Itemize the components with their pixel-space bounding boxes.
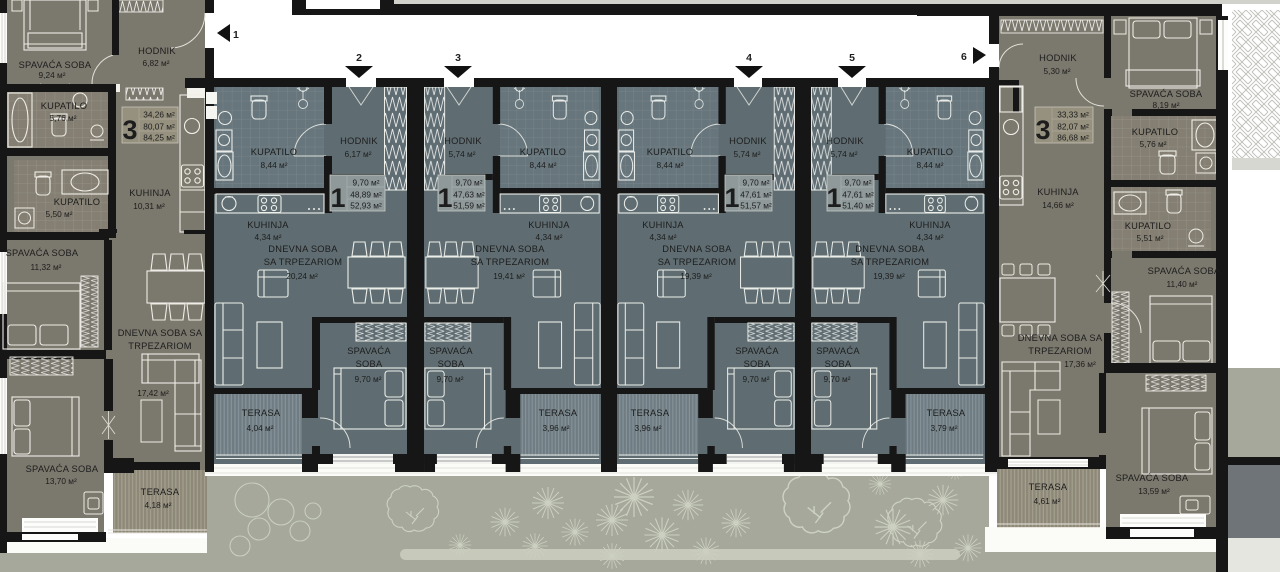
svg-text:3,79 м²: 3,79 м²: [931, 423, 958, 433]
svg-text:1: 1: [233, 29, 239, 41]
svg-text:TERASA: TERASA: [1029, 482, 1068, 492]
svg-text:84,25 м²: 84,25 м²: [143, 133, 175, 143]
svg-text:HODNIK: HODNIK: [729, 136, 767, 146]
svg-text:KUPATILO: KUPATILO: [251, 147, 298, 157]
svg-text:SPAVAĆA SOBA: SPAVAĆA SOBA: [1130, 89, 1203, 99]
svg-text:1: 1: [437, 183, 452, 213]
svg-text:33,33 м²: 33,33 м²: [1057, 110, 1089, 120]
svg-text:8,44 м²: 8,44 м²: [530, 160, 557, 170]
svg-text:3: 3: [455, 52, 461, 64]
svg-text:6,17 м²: 6,17 м²: [345, 149, 372, 159]
svg-text:DNEVNA SOBA: DNEVNA SOBA: [475, 244, 545, 254]
svg-text:34,26 м²: 34,26 м²: [143, 110, 175, 120]
svg-text:KUHINJA: KUHINJA: [642, 220, 684, 230]
svg-text:17,42 м²: 17,42 м²: [137, 388, 169, 398]
svg-text:TERASA: TERASA: [141, 487, 180, 497]
svg-text:TERASA: TERASA: [927, 408, 966, 418]
svg-text:9,70 м²: 9,70 м²: [355, 374, 382, 384]
svg-text:9,70 м²: 9,70 м²: [824, 374, 851, 384]
svg-text:5,76 м²: 5,76 м²: [50, 113, 77, 123]
svg-text:5,74 м²: 5,74 м²: [734, 149, 761, 159]
svg-text:1: 1: [724, 183, 739, 213]
svg-text:SPAVAĆA: SPAVAĆA: [816, 346, 860, 356]
svg-text:3,96 м²: 3,96 м²: [635, 423, 662, 433]
svg-text:TERASA: TERASA: [242, 408, 281, 418]
svg-text:48,89 м²: 48,89 м²: [350, 190, 382, 200]
svg-text:5,74 м²: 5,74 м²: [449, 149, 476, 159]
svg-text:KUPATILO: KUPATILO: [1125, 221, 1172, 231]
svg-text:5,74 м²: 5,74 м²: [831, 149, 858, 159]
svg-text:SA TRPEZARIOM: SA TRPEZARIOM: [471, 257, 550, 267]
svg-text:47,61 м²: 47,61 м²: [740, 190, 772, 200]
svg-text:HODNIK: HODNIK: [340, 136, 378, 146]
svg-text:10,31 м²: 10,31 м²: [133, 201, 165, 211]
svg-text:9,70 м²: 9,70 м²: [353, 178, 380, 188]
svg-text:4,61 м²: 4,61 м²: [1034, 496, 1061, 506]
svg-text:14,66 м²: 14,66 м²: [1042, 200, 1074, 210]
svg-text:13,70 м²: 13,70 м²: [45, 476, 77, 486]
svg-text:3,96 м²: 3,96 м²: [543, 423, 570, 433]
svg-text:SA TRPEZARIOM: SA TRPEZARIOM: [658, 257, 737, 267]
svg-text:KUHINJA: KUHINJA: [909, 220, 951, 230]
svg-text:4,04 м²: 4,04 м²: [247, 423, 274, 433]
svg-text:20,24 м²: 20,24 м²: [286, 271, 318, 281]
svg-text:51,59 м²: 51,59 м²: [453, 201, 485, 211]
svg-text:DNEVNA SOBA: DNEVNA SOBA: [855, 244, 925, 254]
svg-text:9,70 м²: 9,70 м²: [456, 178, 483, 188]
svg-text:17,36 м²: 17,36 м²: [1064, 359, 1096, 369]
svg-text:8,44 м²: 8,44 м²: [657, 160, 684, 170]
svg-text:5,76 м²: 5,76 м²: [1140, 139, 1167, 149]
svg-text:KUHINJA: KUHINJA: [247, 220, 289, 230]
svg-text:SPAVAĆA: SPAVAĆA: [735, 346, 779, 356]
svg-text:2: 2: [356, 52, 362, 64]
svg-text:KUPATILO: KUPATILO: [1132, 127, 1179, 137]
svg-text:9,70 м²: 9,70 м²: [845, 178, 872, 188]
svg-text:86,68 м²: 86,68 м²: [1057, 133, 1089, 143]
svg-text:5,50 м²: 5,50 м²: [46, 209, 73, 219]
svg-text:4: 4: [746, 52, 752, 64]
svg-text:SA TRPEZARIOM: SA TRPEZARIOM: [851, 257, 930, 267]
svg-text:13,59 м²: 13,59 м²: [1138, 486, 1170, 496]
svg-text:SPAVAĆA: SPAVAĆA: [347, 346, 391, 356]
svg-text:HODNIK: HODNIK: [138, 46, 176, 56]
svg-text:KUHINJA: KUHINJA: [129, 188, 171, 198]
svg-text:8,44 м²: 8,44 м²: [917, 160, 944, 170]
svg-text:TRPEZARIOM: TRPEZARIOM: [1028, 346, 1091, 356]
svg-text:1: 1: [330, 183, 345, 213]
svg-text:51,40 м²: 51,40 м²: [842, 201, 874, 211]
svg-text:11,40 м²: 11,40 м²: [1167, 279, 1198, 289]
svg-text:HODNIK: HODNIK: [826, 136, 864, 146]
svg-text:SA TRPEZARIOM: SA TRPEZARIOM: [264, 257, 343, 267]
svg-text:4,34 м²: 4,34 м²: [536, 232, 563, 242]
svg-text:SPAVAĆA SOBA: SPAVAĆA SOBA: [6, 248, 79, 258]
svg-text:4,34 м²: 4,34 м²: [917, 232, 944, 242]
svg-text:6: 6: [961, 51, 967, 63]
svg-text:8,44 м²: 8,44 м²: [261, 160, 288, 170]
svg-text:80,07 м²: 80,07 м²: [143, 122, 175, 132]
svg-text:SPAVAĆA SOBA: SPAVAĆA SOBA: [1116, 473, 1189, 483]
svg-text:DNEVNA SOBA: DNEVNA SOBA: [268, 244, 338, 254]
svg-text:TRPEZARIOM: TRPEZARIOM: [128, 341, 191, 351]
svg-text:SPAVAĆA SOBA: SPAVAĆA SOBA: [19, 60, 92, 70]
svg-text:6,82 м²: 6,82 м²: [143, 58, 170, 68]
svg-text:1: 1: [826, 183, 841, 213]
svg-text:HODNIK: HODNIK: [444, 136, 482, 146]
svg-text:SOBA: SOBA: [825, 359, 852, 369]
svg-text:8,19 м²: 8,19 м²: [1153, 100, 1180, 110]
svg-text:82,07 м²: 82,07 м²: [1057, 122, 1089, 132]
svg-text:9,70 м²: 9,70 м²: [743, 178, 770, 188]
svg-text:KUPATILO: KUPATILO: [54, 197, 101, 207]
svg-text:3: 3: [1035, 115, 1050, 145]
svg-text:19,39 м²: 19,39 м²: [680, 271, 712, 281]
svg-text:5,30 м²: 5,30 м²: [1044, 66, 1071, 76]
svg-text:47,61 м²: 47,61 м²: [842, 190, 874, 200]
svg-text:11,32 м²: 11,32 м²: [31, 262, 62, 272]
svg-text:KUPATILO: KUPATILO: [520, 147, 567, 157]
svg-text:SOBA: SOBA: [356, 359, 383, 369]
svg-text:KUHINJA: KUHINJA: [1037, 187, 1079, 197]
svg-text:TERASA: TERASA: [539, 408, 578, 418]
svg-text:5: 5: [849, 52, 855, 64]
svg-text:4,34 м²: 4,34 м²: [650, 232, 677, 242]
svg-text:KUPATILO: KUPATILO: [41, 101, 88, 111]
svg-text:47,63 м²: 47,63 м²: [453, 190, 485, 200]
svg-text:SPAVAĆA: SPAVAĆA: [429, 346, 473, 356]
svg-text:KUHINJA: KUHINJA: [528, 220, 570, 230]
svg-text:3: 3: [122, 115, 137, 145]
svg-text:9,70 м²: 9,70 м²: [437, 374, 464, 384]
svg-text:HODNIK: HODNIK: [1039, 53, 1077, 63]
svg-text:19,39 м²: 19,39 м²: [873, 271, 905, 281]
svg-text:TERASA: TERASA: [631, 408, 670, 418]
svg-text:9,70 м²: 9,70 м²: [743, 374, 770, 384]
svg-text:SPAVAĆA SOBA: SPAVAĆA SOBA: [26, 464, 99, 474]
svg-text:9,24 м²: 9,24 м²: [39, 70, 66, 80]
svg-text:4,18 м²: 4,18 м²: [145, 500, 172, 510]
svg-text:DNEVNA SOBA SA: DNEVNA SOBA SA: [118, 328, 203, 338]
svg-text:DNEVNA SOBA: DNEVNA SOBA: [662, 244, 732, 254]
svg-text:19,41 м²: 19,41 м²: [493, 271, 525, 281]
svg-text:SOBA: SOBA: [438, 359, 465, 369]
svg-text:KUPATILO: KUPATILO: [907, 147, 954, 157]
svg-text:4,34 м²: 4,34 м²: [255, 232, 282, 242]
svg-text:5,51 м²: 5,51 м²: [1137, 233, 1164, 243]
svg-text:52,93 м²: 52,93 м²: [350, 201, 382, 211]
svg-text:KUPATILO: KUPATILO: [647, 147, 694, 157]
svg-text:SPAVAĆA SOBA: SPAVAĆA SOBA: [1148, 266, 1221, 276]
svg-text:SOBA: SOBA: [744, 359, 771, 369]
svg-text:51,57 м²: 51,57 м²: [740, 201, 772, 211]
svg-text:DNEVNA SOBA SA: DNEVNA SOBA SA: [1018, 333, 1103, 343]
